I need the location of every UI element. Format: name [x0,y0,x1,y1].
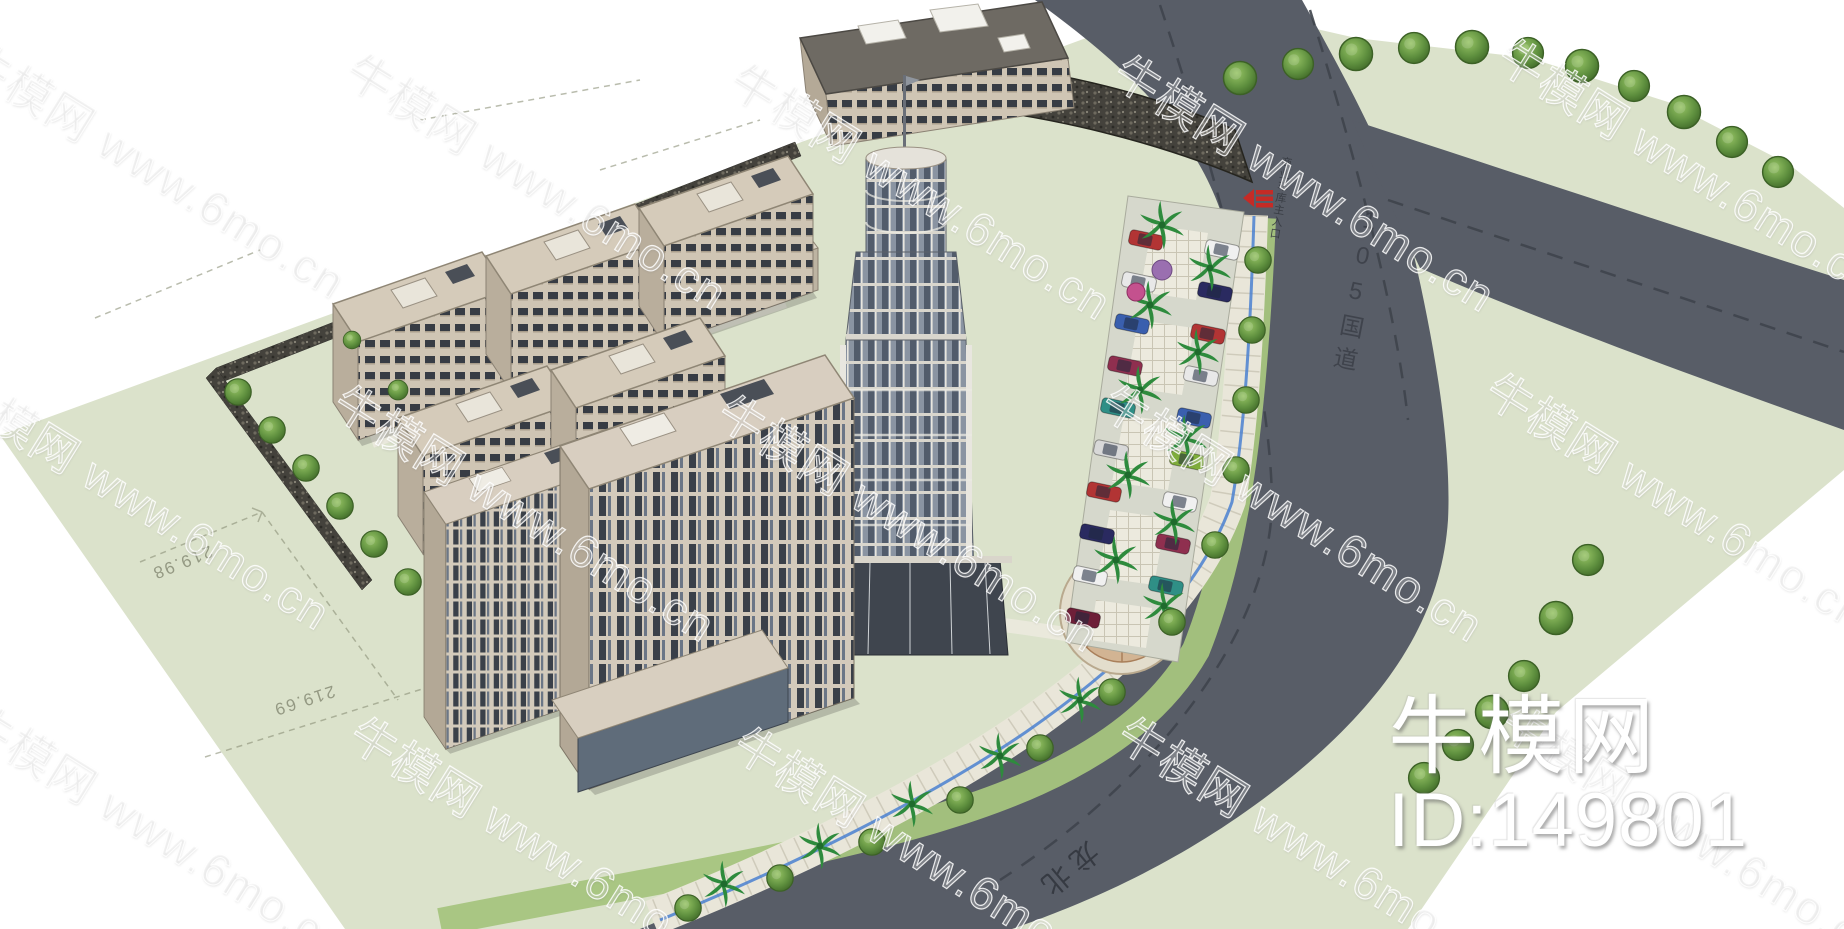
watermark-brand-name: 牛模网 [1388,694,1748,782]
brand-watermark: 牛模网 ID:149801 [1388,694,1748,859]
architectural-render: 牛模网 www.6mo.cn 牛模网 www.6mo.cn 牛模网 www.6m… [0,0,1844,929]
watermark-model-id: ID:149801 [1388,782,1748,860]
